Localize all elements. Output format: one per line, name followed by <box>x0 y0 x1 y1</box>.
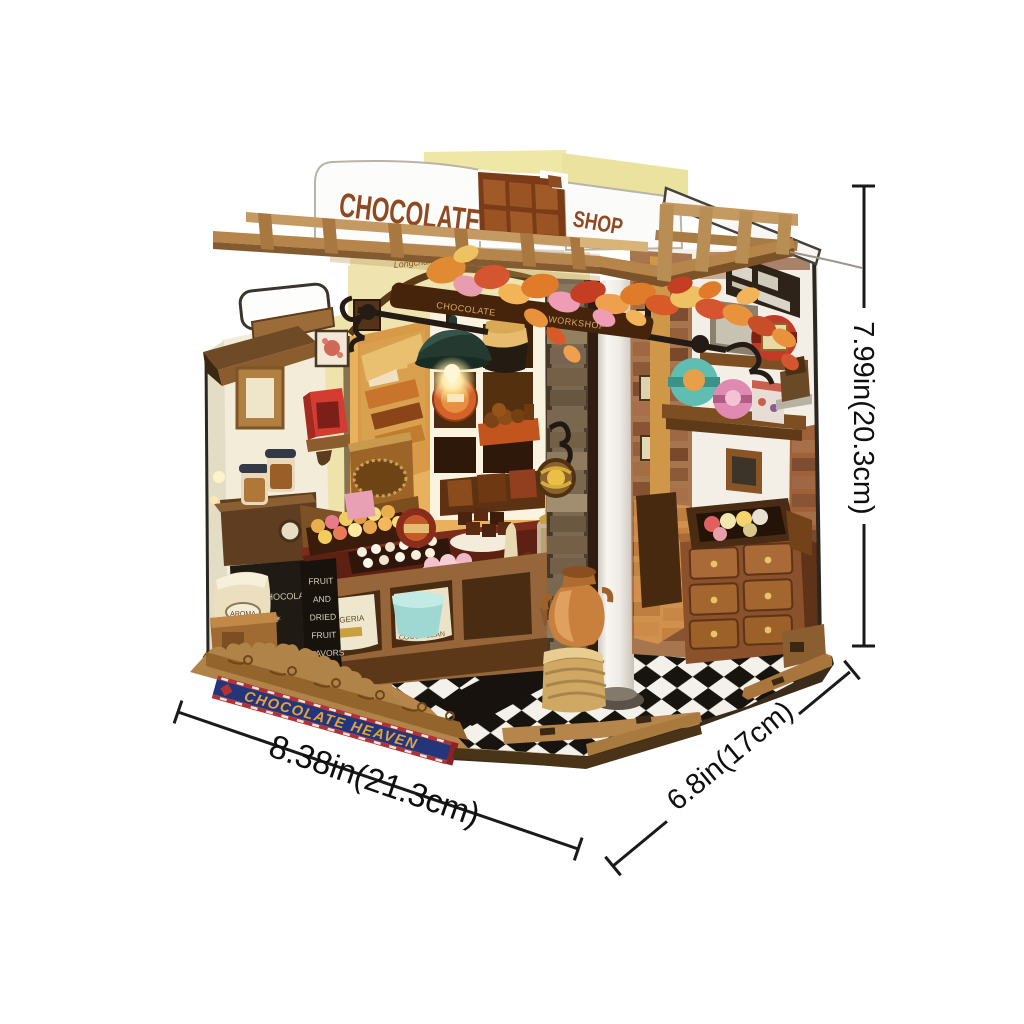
svg-text:FRUIT: FRUIT <box>308 576 333 587</box>
svg-text:AND: AND <box>313 594 331 605</box>
svg-text:FRUIT: FRUIT <box>311 630 336 641</box>
svg-text:DRIED: DRIED <box>310 612 337 623</box>
svg-text:7.99in(20.3cm): 7.99in(20.3cm) <box>847 321 879 514</box>
